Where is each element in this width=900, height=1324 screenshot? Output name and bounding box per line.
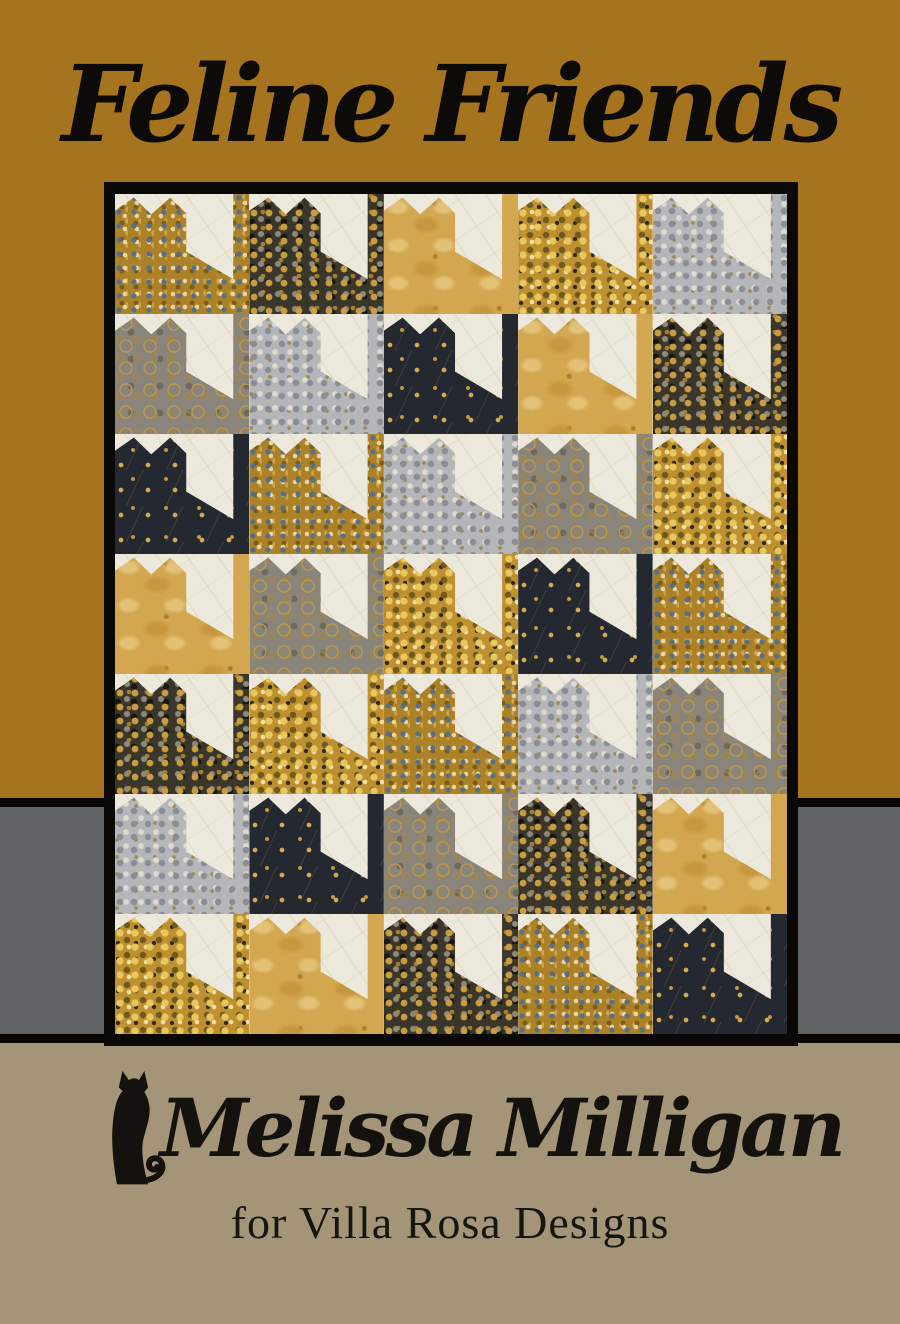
quilt-block xyxy=(115,434,249,554)
cat-block-black-tri xyxy=(249,794,383,914)
quilt-block xyxy=(518,194,652,314)
quilt-block xyxy=(115,794,249,914)
cat-block-gold-floral xyxy=(653,554,787,674)
quilt-block xyxy=(249,554,383,674)
quilt-block xyxy=(249,794,383,914)
cat-block-gray-swirl xyxy=(384,794,518,914)
cat-block-gold-floral xyxy=(384,674,518,794)
quilt-block xyxy=(653,554,787,674)
cat-block-black-tri xyxy=(653,914,787,1034)
cat-block-silver-pebble xyxy=(384,434,518,554)
quilt-block xyxy=(384,914,518,1034)
quilt-block xyxy=(249,914,383,1034)
quilt-block xyxy=(115,674,249,794)
quilt-photo-frame xyxy=(104,182,798,1046)
quilt-block xyxy=(115,314,249,434)
quilt-block xyxy=(384,314,518,434)
quilt-block xyxy=(115,194,249,314)
cat-block-tan xyxy=(249,914,383,1034)
quilt-block xyxy=(384,434,518,554)
quilt-block xyxy=(518,314,652,434)
cat-block-gray-swirl xyxy=(518,434,652,554)
quilt-block xyxy=(653,674,787,794)
cat-block-silver-pebble xyxy=(249,314,383,434)
quilt-block xyxy=(249,434,383,554)
quilt-block xyxy=(518,794,652,914)
cat-block-tan xyxy=(518,314,652,434)
cat-block-gold-floral xyxy=(518,914,652,1034)
designer-name: Melissa Milligan xyxy=(160,1080,842,1176)
cat-block-gray-swirl xyxy=(249,554,383,674)
quilt-block xyxy=(249,314,383,434)
cat-block-gold-pebble xyxy=(384,554,518,674)
cat-block-gray-swirl xyxy=(653,674,787,794)
cat-block-gold-pebble xyxy=(115,914,249,1034)
cat-block-black-tri xyxy=(115,434,249,554)
cat-block-gold-pebble xyxy=(518,194,652,314)
cat-block-black-tri xyxy=(518,554,652,674)
cat-block-black-pebble xyxy=(518,794,652,914)
quilt-block xyxy=(384,674,518,794)
cat-block-gold-pebble xyxy=(249,674,383,794)
quilt-pattern-cover: Feline Friends Melissa Milligan for Vill… xyxy=(0,0,900,1324)
quilt-block xyxy=(384,794,518,914)
cat-block-tan xyxy=(384,194,518,314)
cat-block-gold-pebble xyxy=(653,434,787,554)
quilt-block xyxy=(384,194,518,314)
quilt-photo xyxy=(115,194,787,1034)
cat-block-tan xyxy=(115,554,249,674)
cat-block-black-pebble xyxy=(249,194,383,314)
quilt-block xyxy=(653,314,787,434)
quilt-block xyxy=(653,914,787,1034)
cat-block-black-pebble xyxy=(653,314,787,434)
quilt-block xyxy=(115,554,249,674)
quilt-block xyxy=(518,554,652,674)
quilt-block xyxy=(653,194,787,314)
quilt-block xyxy=(249,674,383,794)
cat-block-black-pebble xyxy=(384,914,518,1034)
quilt-block xyxy=(518,434,652,554)
quilt-block xyxy=(518,914,652,1034)
cat-block-gold-floral xyxy=(249,434,383,554)
quilt-block xyxy=(518,674,652,794)
quilt-block xyxy=(249,194,383,314)
cat-block-black-tri xyxy=(384,314,518,434)
cat-block-black-pebble xyxy=(115,674,249,794)
cat-block-tan xyxy=(653,794,787,914)
cat-block-silver-pebble xyxy=(518,674,652,794)
quilt-block xyxy=(384,554,518,674)
page-title: Feline Friends xyxy=(0,38,900,171)
publisher-credit: for Villa Rosa Designs xyxy=(0,1196,900,1249)
cat-block-silver-pebble xyxy=(653,194,787,314)
cat-block-gold-floral xyxy=(115,194,249,314)
cat-block-silver-pebble xyxy=(115,794,249,914)
quilt-block xyxy=(653,434,787,554)
quilt-block xyxy=(653,794,787,914)
quilt-block xyxy=(115,914,249,1034)
cat-block-gray-swirl xyxy=(115,314,249,434)
